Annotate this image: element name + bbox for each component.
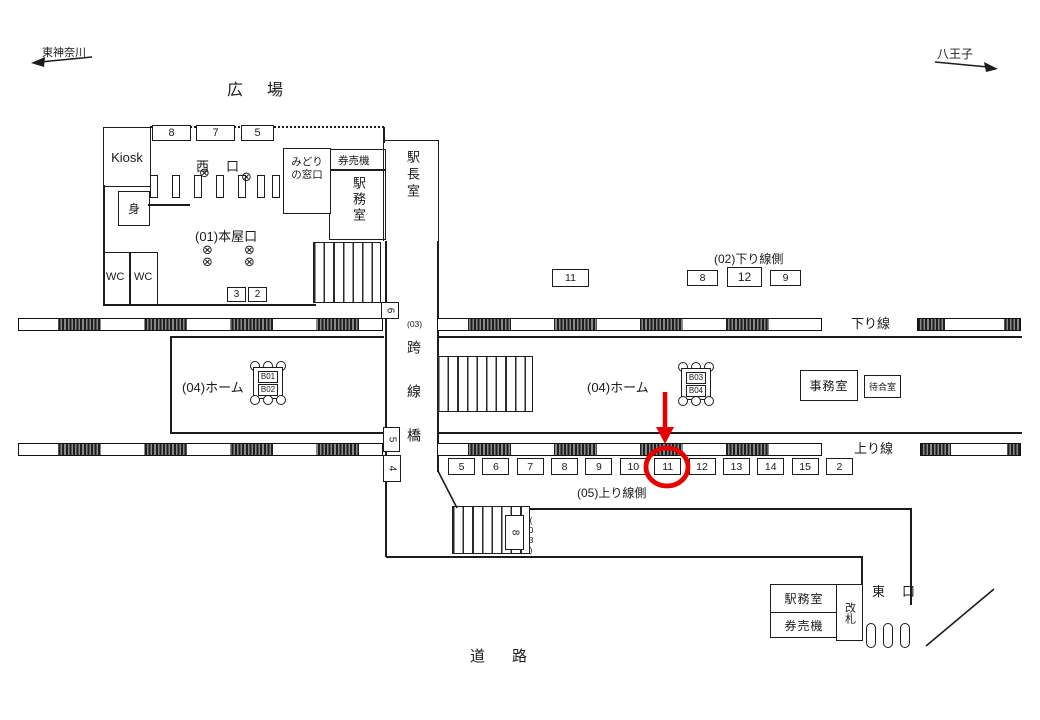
body-check-label: 身 <box>128 200 140 217</box>
platform-label-west: (04)ホーム <box>182 377 244 396</box>
ad-box: 11 <box>552 269 589 287</box>
ad-box: 12 <box>727 267 762 287</box>
ad-box: 6 <box>482 458 509 475</box>
master-office-label: 駅長室 <box>403 150 422 201</box>
midori-line1: みどり <box>291 156 323 169</box>
bench-seats <box>250 395 286 405</box>
platform-end-slant-line <box>438 471 457 508</box>
kiosk-label: Kiosk <box>111 150 143 165</box>
ad-number: 7 <box>212 127 218 139</box>
ticket-gate-bar <box>150 175 158 198</box>
up-track-segment <box>920 443 1021 456</box>
ad-box: 10 <box>620 458 647 475</box>
midori-window-box: みどり の窓口 <box>283 148 331 214</box>
wc-right-label: WC <box>134 271 152 283</box>
arrow-right-line <box>935 62 988 67</box>
ad-number: 8 <box>168 127 174 139</box>
midori-line2: の窓口 <box>291 169 323 182</box>
highlight-arrow-head-icon <box>656 427 674 444</box>
ad-number: 6 <box>385 308 396 314</box>
ad-number: 12 <box>738 270 751 284</box>
arrow-right-head-icon <box>984 62 998 72</box>
ticket-gate-bar <box>272 175 280 198</box>
east-exit-label: 東 口 <box>872 581 917 600</box>
ad-box: 2 <box>826 458 853 475</box>
gate-pillar-icon: ⊗⊗ <box>200 244 215 268</box>
ad-number: 8 <box>700 272 706 284</box>
direction-right-label: 八王子 <box>937 45 973 62</box>
east-ticket-machine-label: 券売機 <box>784 617 823 634</box>
platform-west-edge <box>170 336 172 434</box>
ad-box: 8 <box>687 270 718 286</box>
bench-tag: B02 <box>258 384 278 396</box>
bench-seats <box>678 396 714 406</box>
wc-left-label: WC <box>106 271 124 283</box>
east-office-box: 駅務室 <box>770 584 838 613</box>
down-track-segment <box>18 318 383 331</box>
ad-box: 7 <box>196 125 235 141</box>
ad-box: 6 <box>381 302 399 319</box>
gate-wheel-icon: ⊗ <box>241 170 252 183</box>
down-track-segment <box>917 318 1021 331</box>
ad-box: 13 <box>723 458 750 475</box>
east-gate-box: 改札 <box>836 584 863 641</box>
ad-box: 8 <box>505 515 524 550</box>
ad-box: 8 <box>551 458 578 475</box>
bench-tag: B04 <box>686 385 706 397</box>
ticket-gate-bar <box>900 623 910 648</box>
walkway-top-edge <box>530 508 912 510</box>
up-track-segment <box>437 443 822 456</box>
station-map: 東神奈川 八王子 広 場 Kiosk 8 7 5 西 口 ⊗ ⊗ 身 WC WC… <box>0 0 1040 720</box>
ad-box: 8 <box>152 125 191 141</box>
ticket-gate-bar <box>257 175 265 198</box>
ad-box: 5 <box>383 427 400 452</box>
south-stairs-code-label: (03) <box>526 515 536 555</box>
platform-bottom-edge <box>170 432 384 434</box>
platform-office-box: 事務室 <box>800 370 858 401</box>
road-label: 道 路 <box>470 645 533 666</box>
waiting-room-box: 待合室 <box>864 375 901 398</box>
bridge-left-wall <box>385 241 387 557</box>
ads-up-side-row: 567891011121314152 <box>448 458 853 475</box>
wc-area: WC WC <box>103 252 158 305</box>
east-office-label: 駅務室 <box>784 590 823 607</box>
platform-label-east: (04)ホーム <box>587 377 649 396</box>
ad-number: 4 <box>387 466 398 472</box>
waiting-room-label: 待合室 <box>869 380 896 393</box>
ad-box: 5 <box>448 458 475 475</box>
ticket-machine-label: 券売機 <box>338 153 370 168</box>
station-office-label: 駅務室 <box>349 176 368 224</box>
ad-number: 5 <box>254 127 260 139</box>
ad-number: 3 <box>234 289 240 300</box>
ad-number: 2 <box>255 289 261 300</box>
ad-box: 3 <box>227 287 246 302</box>
ticket-gate-bar <box>172 175 180 198</box>
platform-stairs <box>438 356 533 412</box>
ad-box: 9 <box>585 458 612 475</box>
ticket-gate-bar <box>883 623 893 648</box>
east-gate-label: 改札 <box>842 602 858 624</box>
gate-wheel-icon: ⊗ <box>199 166 210 179</box>
ad-box: 14 <box>757 458 784 475</box>
ad-box: 15 <box>792 458 819 475</box>
up-track-segment <box>18 443 383 456</box>
office-divider <box>329 169 386 171</box>
plaza-label: 広 場 <box>227 76 287 100</box>
ad-box: 9 <box>770 270 801 286</box>
bench-tag: B03 <box>686 372 706 384</box>
platform-bottom-edge <box>438 432 1022 434</box>
walkway-bottom-edge <box>386 556 863 558</box>
down-track-segment <box>437 318 822 331</box>
ad-box: 12 <box>689 458 716 475</box>
ad-number: 9 <box>783 272 789 284</box>
ad-box: 2 <box>248 287 267 302</box>
bench-west: B01 B02 <box>250 361 286 405</box>
platform-top-edge <box>170 336 384 338</box>
bench-east: B03 B04 <box>678 362 714 406</box>
wc-divider <box>129 253 131 304</box>
platform-office-label: 事務室 <box>809 377 848 394</box>
ad-number: 5 <box>386 437 397 443</box>
ad-box: 4 <box>383 455 401 482</box>
platform-top-edge <box>438 336 1022 338</box>
ad-number: 11 <box>565 272 576 284</box>
gate-pillar-icon: ⊗⊗ <box>242 244 257 268</box>
ticket-gate-bar <box>216 175 224 198</box>
gate-area-wall <box>148 204 190 206</box>
down-line-label: 下り線 <box>851 313 890 332</box>
bridge-label: 跨線橋 <box>404 340 424 472</box>
body-check-box: 身 <box>118 191 150 226</box>
ad-box: 7 <box>517 458 544 475</box>
bridge-code-label: (03) <box>407 319 422 329</box>
bench-tag: B01 <box>258 371 278 383</box>
direction-left-label: 東神奈川 <box>42 44 86 60</box>
up-line-label: 上り線 <box>854 438 893 457</box>
ads-down-side-label: (02)下り線側 <box>714 250 783 267</box>
kiosk-box: Kiosk <box>103 127 151 187</box>
ads-up-side-label: (05)上り線側 <box>577 484 646 501</box>
ticket-gate-bar <box>866 623 876 648</box>
ad-number: 8 <box>509 530 520 536</box>
ad-box: 5 <box>241 125 274 141</box>
east-passage-left-wall <box>861 556 863 586</box>
east-ticket-machine-box: 券売機 <box>770 612 838 638</box>
east-entrance-diagonal-line <box>926 589 994 646</box>
west-stairs <box>313 242 381 303</box>
ad-box: 11 <box>654 458 681 475</box>
